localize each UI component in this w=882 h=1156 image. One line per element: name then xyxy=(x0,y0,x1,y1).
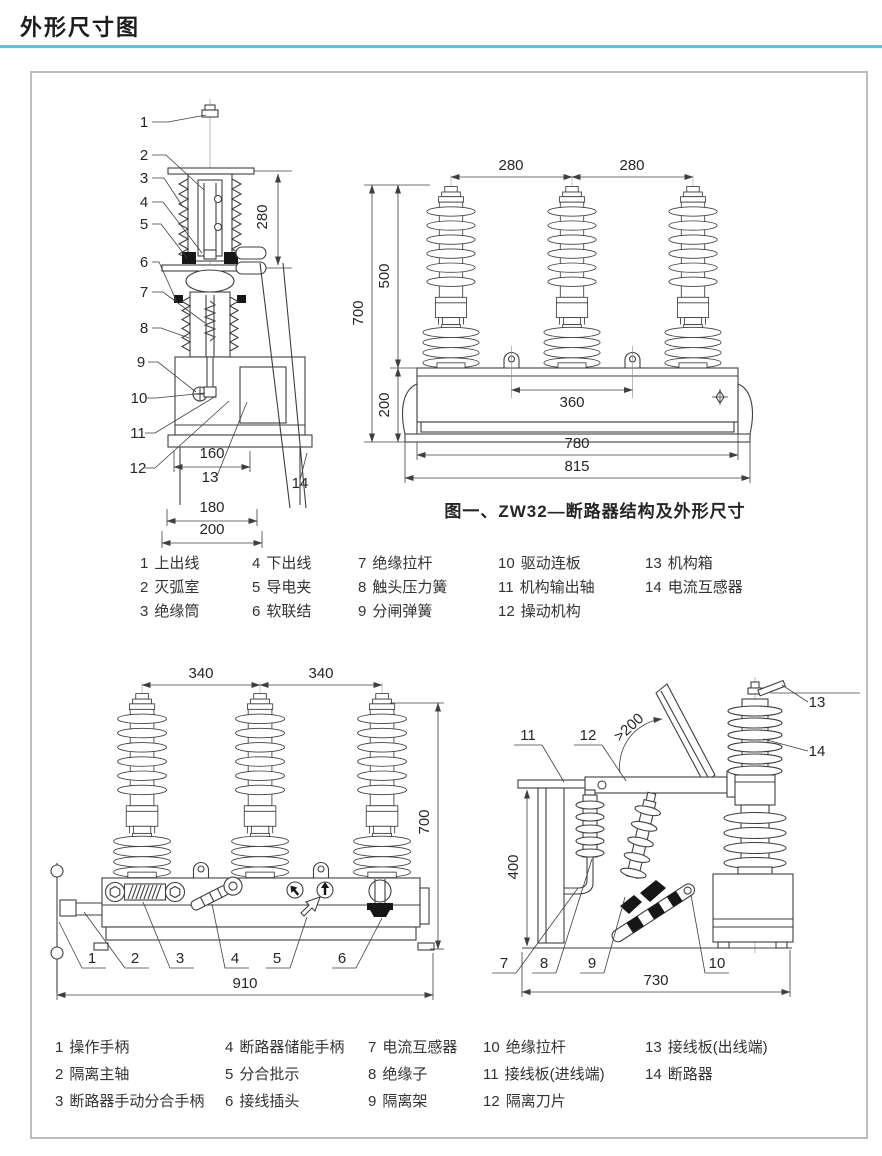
callout-number: 12 xyxy=(580,727,597,744)
legend-label: 软联结 xyxy=(266,603,311,620)
dim-label: 280 xyxy=(498,157,523,174)
figure2-side-view: 11 12 13 14 7 8 9 10 >200 400 730 xyxy=(480,655,882,1010)
legend-item: 5分合批示 xyxy=(225,1061,344,1088)
legend-number: 7 xyxy=(358,555,366,572)
figure1-legend-col-5: 13机构箱 14电流互感器 xyxy=(645,552,743,600)
dim-label: 780 xyxy=(564,435,589,452)
tilted-insulator xyxy=(620,790,665,880)
legend-label: 接线板(进线端) xyxy=(505,1066,605,1083)
legend-number: 6 xyxy=(252,603,260,620)
legend-item: 11接线板(进线端) xyxy=(483,1061,605,1088)
legend-number: 10 xyxy=(498,555,515,572)
dim-label: >200 xyxy=(611,710,647,745)
legend-label: 上出线 xyxy=(154,555,199,572)
disconnector-drawing xyxy=(518,677,860,953)
poles xyxy=(114,683,411,881)
legend-item: 3断路器手动分合手柄 xyxy=(55,1088,204,1115)
post-insulator xyxy=(564,790,604,894)
legend-item: 13接线板(出线端) xyxy=(645,1034,768,1061)
legend-number: 13 xyxy=(645,1039,662,1056)
legend-label: 断路器手动分合手柄 xyxy=(69,1093,204,1110)
dim-label: 200 xyxy=(199,521,224,538)
legend-item: 5导电夹 xyxy=(252,576,311,600)
callout-number: 4 xyxy=(231,950,239,967)
legend-item: 9分闸弹簧 xyxy=(358,600,447,624)
legend-item: 9隔离架 xyxy=(368,1088,457,1115)
figure2-legend-col-4: 10绝缘拉杆 11接线板(进线端) 12隔离刀片 xyxy=(483,1034,605,1115)
figure2-legend-col-1: 1操作手柄 2隔离主轴 3断路器手动分合手柄 xyxy=(55,1034,204,1115)
legend-item: 3绝缘筒 xyxy=(140,600,199,624)
legend-item: 1上出线 xyxy=(140,552,199,576)
dim-label: 280 xyxy=(619,157,644,174)
callout-number: 14 xyxy=(292,475,309,492)
legend-number: 5 xyxy=(225,1066,233,1083)
dim-label: 500 xyxy=(376,263,393,288)
legend-label: 电流互感器 xyxy=(382,1039,457,1056)
dim-label: 340 xyxy=(308,665,333,682)
legend-number: 14 xyxy=(645,1066,662,1083)
breaker-pole-side xyxy=(713,677,860,953)
legend-number: 4 xyxy=(225,1039,233,1056)
figure2-legend-col-2: 4断路器储能手柄 5分合批示 6接线插头 xyxy=(225,1034,344,1115)
legend-label: 隔离刀片 xyxy=(506,1093,566,1110)
legend-number: 9 xyxy=(358,603,366,620)
callout-number: 8 xyxy=(140,320,148,337)
callout-number: 3 xyxy=(140,170,148,187)
legend-item: 12隔离刀片 xyxy=(483,1088,605,1115)
legend-label: 操作手柄 xyxy=(69,1039,129,1056)
dim-label: 730 xyxy=(643,972,668,989)
legend-number: 7 xyxy=(368,1039,376,1056)
figure1-legend-col-3: 7绝缘拉杆 8触头压力簧 9分闸弹簧 xyxy=(358,552,447,624)
legend-item: 7电流互感器 xyxy=(368,1034,457,1061)
legend-number: 1 xyxy=(55,1039,63,1056)
callout-number: 1 xyxy=(140,114,148,131)
legend-item: 2隔离主轴 xyxy=(55,1061,204,1088)
dim-label: 200 xyxy=(376,392,393,417)
legend-item: 11机构输出轴 xyxy=(498,576,595,600)
legend-number: 8 xyxy=(358,579,366,596)
legend-label: 隔离主轴 xyxy=(69,1066,129,1083)
legend-item: 1操作手柄 xyxy=(55,1034,204,1061)
legend-item: 6接线插头 xyxy=(225,1088,344,1115)
legend-label: 接线板(出线端) xyxy=(668,1039,768,1056)
legend-label: 导电夹 xyxy=(266,579,311,596)
drive-linkage xyxy=(610,880,697,944)
legend-number: 12 xyxy=(498,603,515,620)
legend-label: 断路器 xyxy=(668,1066,713,1083)
legend-label: 机构箱 xyxy=(668,555,713,572)
catalog-page: 外形尺寸图 xyxy=(0,0,882,1156)
callout-number: 6 xyxy=(338,950,346,967)
legend-label: 灭弧室 xyxy=(154,579,199,596)
figure2-front-view: 1 2 3 4 5 6 340 340 700 910 xyxy=(40,660,470,1010)
legend-item: 13机构箱 xyxy=(645,552,743,576)
legend-number: 11 xyxy=(483,1066,499,1083)
callout-number: 7 xyxy=(500,955,508,972)
page-title: 外形尺寸图 xyxy=(20,10,140,42)
energy-spring xyxy=(106,883,185,902)
callout-number: 2 xyxy=(131,950,139,967)
legend-number: 2 xyxy=(140,579,148,596)
legend-label: 绝缘拉杆 xyxy=(372,555,432,572)
legend-label: 绝缘子 xyxy=(382,1066,427,1083)
legend-label: 接线插头 xyxy=(239,1093,299,1110)
legend-number: 2 xyxy=(55,1066,63,1083)
legend-number: 10 xyxy=(483,1039,500,1056)
callout-number: 4 xyxy=(140,194,148,211)
legend-item: 14断路器 xyxy=(645,1061,768,1088)
callout-number: 12 xyxy=(130,460,147,477)
legend-label: 绝缘筒 xyxy=(154,603,199,620)
dim-label: 340 xyxy=(188,665,213,682)
dim-label: 700 xyxy=(416,809,433,834)
legend-number: 3 xyxy=(55,1093,63,1110)
callout-number: 7 xyxy=(140,284,148,301)
legend-item: 7绝缘拉杆 xyxy=(358,552,447,576)
legend-label: 断路器储能手柄 xyxy=(239,1039,344,1056)
legend-item: 6软联结 xyxy=(252,600,311,624)
callout-number: 5 xyxy=(140,216,148,233)
dim-label: 910 xyxy=(232,975,257,992)
legend-label: 隔离架 xyxy=(382,1093,427,1110)
callout-number: 11 xyxy=(520,727,536,744)
callout-number: 10 xyxy=(709,955,726,972)
legend-number: 13 xyxy=(645,555,662,572)
callout-number: 6 xyxy=(140,254,148,271)
figure1-legend-col-1: 1上出线 2灭弧室 3绝缘筒 xyxy=(140,552,199,624)
legend-number: 4 xyxy=(252,555,260,572)
callout-number: 9 xyxy=(588,955,596,972)
legend-label: 分合批示 xyxy=(239,1066,299,1083)
legend-item: 10驱动连板 xyxy=(498,552,595,576)
callout-number: 11 xyxy=(130,425,146,442)
legend-number: 14 xyxy=(645,579,662,596)
wiring-socket xyxy=(367,879,393,917)
legend-label: 机构输出轴 xyxy=(520,579,595,596)
callout-number: 3 xyxy=(176,950,184,967)
callout-number: 14 xyxy=(809,743,826,760)
legend-label: 绝缘拉杆 xyxy=(506,1039,566,1056)
callout-number: 2 xyxy=(140,147,148,164)
figure1-section-view: 1 2 3 4 5 6 7 8 9 10 11 12 13 14 280 160… xyxy=(110,95,350,555)
legend-number: 9 xyxy=(368,1093,376,1110)
legend-item: 14电流互感器 xyxy=(645,576,743,600)
callout-number: 9 xyxy=(137,354,145,371)
figure2-legend-col-5: 13接线板(出线端) 14断路器 xyxy=(645,1034,768,1088)
callout-number: 1 xyxy=(88,950,96,967)
legend-number: 11 xyxy=(498,579,514,596)
callout-number: 5 xyxy=(273,950,281,967)
dim-label: 280 xyxy=(254,204,271,229)
legend-label: 下出线 xyxy=(266,555,311,572)
figure1-legend-col-4: 10驱动连板 11机构输出轴 12操动机构 xyxy=(498,552,595,624)
figure1-front-view: 280 280 700 500 200 360 780 815 xyxy=(350,150,865,490)
poles xyxy=(423,176,721,371)
legend-number: 3 xyxy=(140,603,148,620)
figure2-legend-col-3: 7电流互感器 8绝缘子 9隔离架 xyxy=(368,1034,457,1115)
operating-handle xyxy=(51,863,102,993)
legend-number: 12 xyxy=(483,1093,500,1110)
legend-label: 分闸弹簧 xyxy=(372,603,432,620)
legend-item: 8触头压力簧 xyxy=(358,576,447,600)
legend-item: 10绝缘拉杆 xyxy=(483,1034,605,1061)
legend-item: 4断路器储能手柄 xyxy=(225,1034,344,1061)
dim-label: 400 xyxy=(505,854,522,879)
legend-number: 1 xyxy=(140,555,148,572)
dim-label: 160 xyxy=(199,445,224,462)
figure1-legend-col-2: 4下出线 5导电夹 6软联结 xyxy=(252,552,311,624)
legend-label: 电流互感器 xyxy=(668,579,743,596)
legend-label: 驱动连板 xyxy=(521,555,581,572)
legend-item: 4下出线 xyxy=(252,552,311,576)
pole-section-drawing xyxy=(162,99,312,508)
legend-number: 6 xyxy=(225,1093,233,1110)
figure1-caption: 图一、ZW32—断路器结构及外形尺寸 xyxy=(440,497,750,522)
legend-item: 2灭弧室 xyxy=(140,576,199,600)
legend-number: 5 xyxy=(252,579,260,596)
legend-item: 12操动机构 xyxy=(498,600,595,624)
callout-number: 13 xyxy=(202,469,219,486)
title-underline xyxy=(0,45,882,48)
dim-label: 180 xyxy=(199,499,224,516)
callout-number: 13 xyxy=(809,694,826,711)
legend-label: 触头压力簧 xyxy=(372,579,447,596)
legend-number: 8 xyxy=(368,1066,376,1083)
dim-label: 700 xyxy=(350,300,367,325)
callout-number: 10 xyxy=(131,390,148,407)
dim-label: 815 xyxy=(564,458,589,475)
legend-label: 操动机构 xyxy=(521,603,581,620)
dim-label: 360 xyxy=(559,394,584,411)
legend-item: 8绝缘子 xyxy=(368,1061,457,1088)
callout-number: 8 xyxy=(540,955,548,972)
